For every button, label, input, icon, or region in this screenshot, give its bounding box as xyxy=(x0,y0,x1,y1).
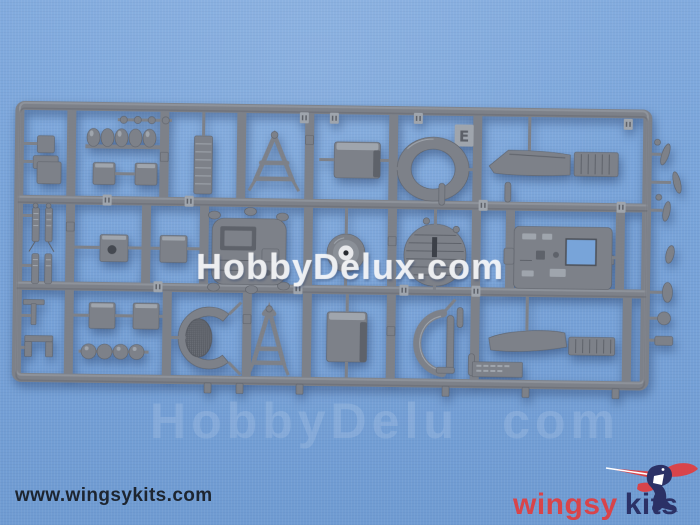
part-tiny-nubs-row xyxy=(118,116,172,124)
part-block-with-hole xyxy=(74,234,146,262)
part-ribbed-rack xyxy=(194,112,213,194)
product-photo: E xyxy=(0,0,700,525)
watermark-faint: HobbyDelu com xyxy=(150,392,620,450)
sprue-letter-tab: E xyxy=(454,124,473,146)
part-machine-guns xyxy=(22,203,55,284)
part-blocks-row3 xyxy=(69,302,167,329)
part-crescent-radiator xyxy=(166,301,241,374)
part-blocks-row1 xyxy=(37,162,157,186)
website-url: www.wingsykits.com xyxy=(15,485,213,507)
parts-right-edge-bottom xyxy=(647,244,676,345)
part-text-tab xyxy=(472,362,522,378)
sprue-letter-text: E xyxy=(459,127,470,145)
brand-word-wingsy: wingsy xyxy=(513,488,618,521)
part-dome-row xyxy=(85,128,161,147)
part-strut-pyramid-1 xyxy=(249,131,300,191)
part-floor-plate xyxy=(503,226,620,290)
part-box-1 xyxy=(319,142,393,179)
hummingbird-icon xyxy=(604,455,699,515)
parts-right-edge-top xyxy=(648,139,683,222)
part-strut-pyramid-2 xyxy=(248,305,289,375)
watermark-faint-right: com xyxy=(502,392,620,450)
part-ball-row xyxy=(78,344,148,360)
watermark-center: HobbyDelux.com xyxy=(196,246,504,288)
part-box-2 xyxy=(326,294,367,379)
part-curved-band xyxy=(417,299,456,374)
watermark-faint-left: HobbyDelu xyxy=(150,392,459,450)
part-t-shape xyxy=(21,299,44,324)
part-u-bracket xyxy=(20,335,52,356)
